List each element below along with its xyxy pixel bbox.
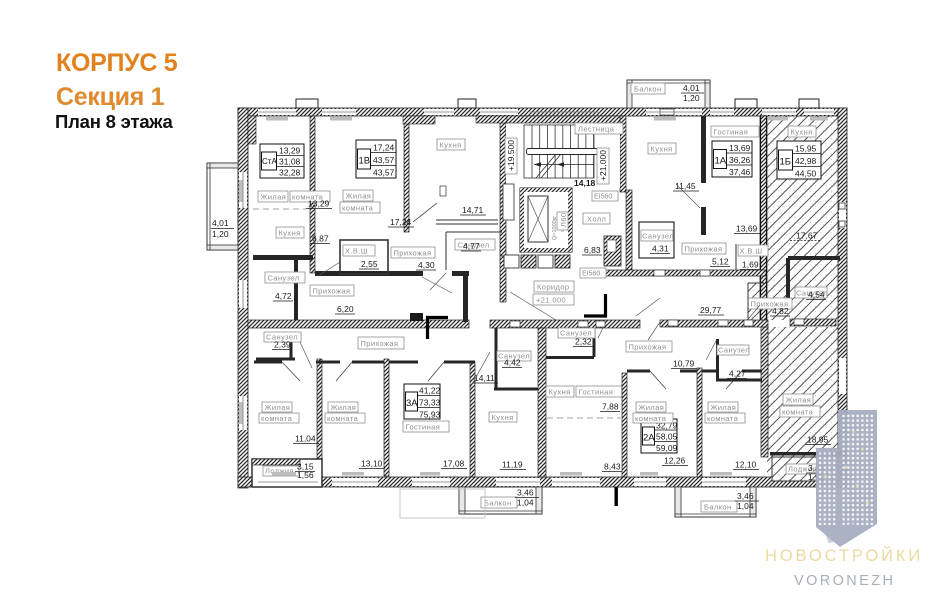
svg-text:EI560: EI560 bbox=[582, 271, 600, 278]
svg-text:Коридор: Коридор bbox=[537, 283, 569, 292]
svg-text:15,95: 15,95 bbox=[795, 144, 817, 154]
svg-text:Жилая: Жилая bbox=[346, 192, 372, 201]
svg-text:Х.В.Ш: Х.В.Ш bbox=[345, 247, 368, 256]
svg-text:13,29: 13,29 bbox=[279, 146, 301, 156]
svg-text:1Б: 1Б bbox=[780, 157, 792, 168]
svg-text:Кухня: Кухня bbox=[492, 413, 514, 422]
svg-text:+21.000: +21.000 bbox=[536, 296, 566, 305]
svg-text:Жилая: Жилая bbox=[331, 403, 357, 412]
svg-text:Жилая: Жилая bbox=[786, 396, 812, 405]
svg-text:37,46: 37,46 bbox=[729, 167, 751, 177]
svg-text:17,08: 17,08 bbox=[443, 459, 465, 469]
svg-text:Балкон: Балкон bbox=[484, 499, 512, 508]
svg-text:32,28: 32,28 bbox=[279, 168, 301, 178]
svg-text:Балкон: Балкон bbox=[704, 503, 732, 512]
svg-text:Секция 1: Секция 1 bbox=[56, 83, 165, 111]
svg-text:14,71: 14,71 bbox=[462, 205, 484, 215]
svg-text:5,12: 5,12 bbox=[712, 257, 729, 267]
svg-text:2А: 2А bbox=[643, 433, 655, 444]
svg-text:1,56: 1,56 bbox=[297, 470, 314, 480]
svg-text:Л60: Л60 bbox=[559, 213, 568, 227]
svg-text:14,18: 14,18 bbox=[574, 178, 596, 188]
svg-text:4,82: 4,82 bbox=[772, 306, 789, 316]
svg-text:Кухня: Кухня bbox=[440, 141, 462, 150]
svg-text:36,26: 36,26 bbox=[729, 155, 751, 165]
svg-text:3,46: 3,46 bbox=[517, 488, 534, 498]
svg-text:+21.000: +21.000 bbox=[598, 150, 608, 181]
svg-text:6,87: 6,87 bbox=[312, 234, 329, 244]
svg-text:43,57: 43,57 bbox=[373, 155, 395, 165]
svg-text:6,20: 6,20 bbox=[337, 304, 354, 314]
svg-text:План 8 этажа: План 8 этажа bbox=[55, 111, 174, 132]
svg-text:17,24: 17,24 bbox=[373, 143, 395, 153]
svg-text:2,55: 2,55 bbox=[361, 259, 378, 269]
svg-text:комната: комната bbox=[342, 204, 374, 213]
svg-text:4,01: 4,01 bbox=[212, 218, 229, 228]
svg-text:12,26: 12,26 bbox=[664, 456, 686, 466]
svg-text:11,19: 11,19 bbox=[502, 460, 523, 470]
svg-text:1,20: 1,20 bbox=[683, 93, 700, 103]
svg-text:1А: 1А bbox=[715, 156, 727, 167]
svg-text:комната: комната bbox=[327, 414, 359, 423]
svg-text:2,32: 2,32 bbox=[575, 337, 592, 347]
svg-text:Прихожая: Прихожая bbox=[313, 287, 351, 296]
svg-text:4,42: 4,42 bbox=[504, 358, 521, 368]
svg-text:Жилая: Жилая bbox=[711, 403, 737, 412]
svg-text:Жилая: Жилая bbox=[261, 193, 287, 202]
svg-text:комната: комната bbox=[707, 414, 739, 423]
svg-text:13,29: 13,29 bbox=[308, 199, 330, 209]
svg-text:Прихожая: Прихожая bbox=[629, 343, 667, 352]
svg-text:18,95: 18,95 bbox=[807, 435, 829, 445]
svg-text:комната: комната bbox=[635, 414, 667, 423]
svg-text:29,77: 29,77 bbox=[700, 305, 722, 315]
svg-text:13,69: 13,69 bbox=[729, 143, 751, 153]
svg-text:31,08: 31,08 bbox=[279, 157, 301, 167]
svg-text:комната: комната bbox=[261, 414, 293, 423]
svg-text:СтА: СтА bbox=[262, 157, 277, 166]
svg-text:Лестница: Лестница bbox=[578, 125, 615, 134]
svg-text:Кухня: Кухня bbox=[279, 229, 301, 238]
svg-text:13,10: 13,10 bbox=[361, 459, 383, 469]
svg-text:Балкон: Балкон bbox=[634, 85, 662, 94]
svg-text:43,57: 43,57 bbox=[373, 168, 395, 178]
svg-text:Санузел: Санузел bbox=[718, 346, 750, 355]
svg-text:Гостиная: Гостиная bbox=[714, 128, 749, 137]
svg-text:Кухня: Кухня bbox=[549, 388, 571, 397]
svg-text:4,31: 4,31 bbox=[652, 244, 669, 254]
svg-text:EI560: EI560 bbox=[594, 194, 612, 201]
svg-text:44,50: 44,50 bbox=[795, 169, 817, 179]
svg-text:7,88: 7,88 bbox=[602, 402, 619, 412]
svg-text:4,30: 4,30 bbox=[418, 260, 435, 270]
svg-text:17,24: 17,24 bbox=[390, 217, 412, 227]
svg-text:1В: 1В bbox=[359, 156, 371, 167]
svg-text:комната: комната bbox=[782, 408, 814, 417]
svg-text:58,05: 58,05 bbox=[656, 432, 678, 442]
svg-text:4,77: 4,77 bbox=[463, 241, 480, 251]
svg-text:Кухня: Кухня bbox=[651, 145, 673, 154]
svg-text:+19.500: +19.500 bbox=[506, 140, 516, 171]
svg-text:2,39: 2,39 bbox=[274, 340, 291, 350]
svg-text:Прихожая: Прихожая bbox=[394, 249, 432, 258]
svg-text:59,09: 59,09 bbox=[656, 443, 678, 453]
svg-text:13,69: 13,69 bbox=[736, 224, 758, 234]
svg-text:Прихожая: Прихожая bbox=[361, 339, 399, 348]
svg-text:Кухня: Кухня bbox=[791, 128, 813, 137]
svg-text:4,27: 4,27 bbox=[729, 369, 746, 379]
svg-text:4,01: 4,01 bbox=[683, 83, 700, 93]
svg-text:4,54: 4,54 bbox=[808, 290, 825, 300]
svg-text:Санузел: Санузел bbox=[642, 232, 674, 241]
svg-text:Холл: Холл bbox=[587, 215, 606, 224]
svg-text:Прихожая: Прихожая bbox=[685, 245, 723, 254]
svg-text:Санузел: Санузел bbox=[268, 274, 300, 283]
svg-text:3,46: 3,46 bbox=[737, 491, 754, 501]
svg-text:Гостиная: Гостиная bbox=[406, 423, 441, 432]
svg-text:4,72: 4,72 bbox=[275, 291, 292, 301]
svg-text:Жилая: Жилая bbox=[265, 403, 291, 412]
svg-text:КОРПУС 5: КОРПУС 5 bbox=[56, 49, 178, 77]
svg-text:75,93: 75,93 bbox=[419, 410, 441, 420]
svg-text:73,33: 73,33 bbox=[419, 398, 441, 408]
svg-text:42,98: 42,98 bbox=[795, 156, 817, 166]
svg-text:Гостиная: Гостиная bbox=[579, 388, 614, 397]
svg-text:41,22: 41,22 bbox=[419, 386, 441, 396]
svg-text:1,04: 1,04 bbox=[517, 498, 534, 508]
svg-text:12,10: 12,10 bbox=[735, 460, 757, 470]
svg-text:6,83: 6,83 bbox=[584, 245, 601, 255]
svg-text:НОВОСТРОЙКИ: НОВОСТРОЙКИ bbox=[765, 546, 923, 565]
svg-text:1,04: 1,04 bbox=[737, 501, 754, 511]
svg-text:17,67: 17,67 bbox=[796, 231, 818, 241]
svg-text:1,20: 1,20 bbox=[212, 229, 229, 239]
svg-text:VORONEZH: VORONEZH bbox=[794, 573, 895, 589]
svg-text:Жилая: Жилая bbox=[639, 403, 665, 412]
svg-text:Х.В.Ш: Х.В.Ш bbox=[740, 247, 763, 256]
svg-text:3А: 3А bbox=[406, 398, 418, 409]
svg-text:8,43: 8,43 bbox=[604, 462, 621, 472]
svg-text:1,69: 1,69 bbox=[742, 260, 759, 270]
svg-text:11,04: 11,04 bbox=[295, 434, 316, 444]
svg-text:10,79: 10,79 bbox=[673, 359, 695, 369]
